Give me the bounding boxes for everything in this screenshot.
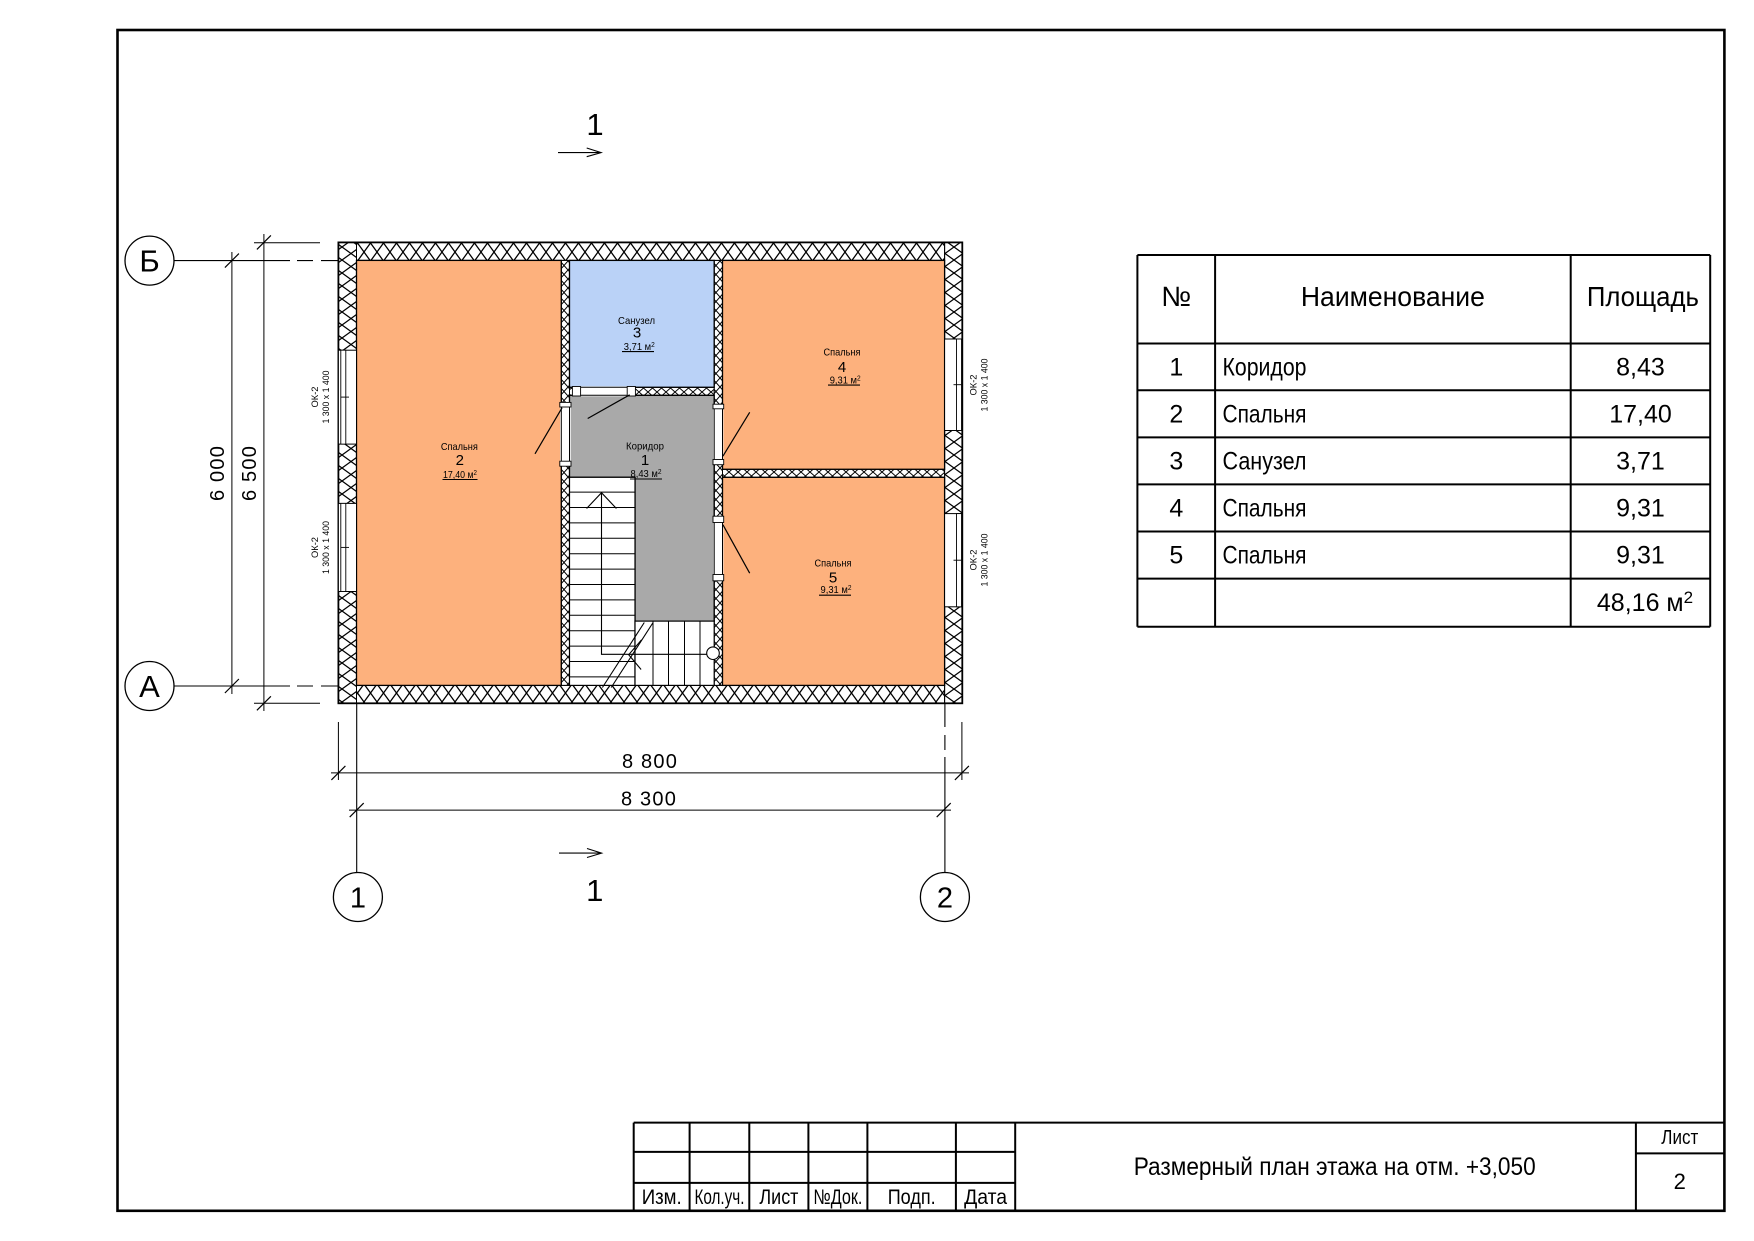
svg-text:3: 3 bbox=[1169, 447, 1183, 475]
svg-text:8,43: 8,43 bbox=[1616, 353, 1665, 381]
svg-text:8,43 м2: 8,43 м2 bbox=[631, 469, 662, 480]
svg-text:Площадь: Площадь bbox=[1587, 281, 1699, 312]
svg-text:1 300 х 1 400: 1 300 х 1 400 bbox=[321, 521, 332, 574]
svg-text:1 300 х 1 400: 1 300 х 1 400 bbox=[980, 534, 991, 587]
svg-text:Размерный план этажа на отм. +: Размерный план этажа на отм. +3,050 bbox=[1134, 1153, 1536, 1181]
svg-text:5: 5 bbox=[829, 570, 837, 587]
svg-text:№: № bbox=[1161, 281, 1191, 312]
svg-text:ОК-2: ОК-2 bbox=[969, 550, 980, 571]
svg-text:1: 1 bbox=[586, 873, 603, 908]
svg-text:ОК-2: ОК-2 bbox=[310, 537, 321, 558]
svg-text:2: 2 bbox=[937, 883, 953, 915]
svg-text:6 500: 6 500 bbox=[239, 445, 261, 501]
svg-text:Коридор: Коридор bbox=[626, 441, 664, 453]
svg-text:2: 2 bbox=[1674, 1169, 1686, 1194]
svg-text:ОК-2: ОК-2 bbox=[310, 387, 321, 408]
svg-text:9,31: 9,31 bbox=[1616, 495, 1665, 523]
svg-text:Спальня: Спальня bbox=[824, 346, 861, 358]
svg-text:Спальня: Спальня bbox=[815, 558, 852, 570]
svg-text:5: 5 bbox=[1169, 542, 1183, 570]
svg-text:1: 1 bbox=[641, 452, 649, 469]
svg-text:2: 2 bbox=[1169, 400, 1183, 428]
svg-text:1 300 х 1 400: 1 300 х 1 400 bbox=[321, 371, 332, 424]
svg-text:2: 2 bbox=[456, 452, 464, 469]
svg-text:Спальня: Спальня bbox=[1223, 400, 1307, 428]
svg-text:9,31 м2: 9,31 м2 bbox=[821, 585, 852, 596]
svg-text:Спальня: Спальня bbox=[1223, 542, 1307, 570]
svg-text:4: 4 bbox=[1169, 495, 1183, 523]
svg-text:А: А bbox=[139, 669, 160, 704]
svg-text:Лист: Лист bbox=[759, 1186, 798, 1209]
svg-text:Б: Б bbox=[139, 244, 159, 279]
svg-text:Изм.: Изм. bbox=[642, 1186, 682, 1209]
svg-text:4: 4 bbox=[838, 359, 846, 376]
svg-text:ОК-2: ОК-2 bbox=[969, 375, 980, 396]
svg-text:3,71: 3,71 bbox=[1616, 447, 1665, 475]
svg-text:№Док.: №Док. bbox=[813, 1186, 862, 1209]
svg-text:Кол.уч.: Кол.уч. bbox=[695, 1186, 745, 1209]
svg-text:Наименование: Наименование bbox=[1301, 281, 1485, 312]
svg-text:17,40: 17,40 bbox=[1609, 400, 1672, 428]
svg-text:Спальня: Спальня bbox=[1223, 495, 1307, 523]
svg-text:1: 1 bbox=[586, 107, 603, 142]
svg-text:8 300: 8 300 bbox=[621, 788, 677, 810]
svg-text:1 300 х 1 400: 1 300 х 1 400 bbox=[980, 359, 991, 412]
svg-text:Коридор: Коридор bbox=[1223, 353, 1307, 381]
svg-text:Дата: Дата bbox=[964, 1186, 1007, 1209]
svg-text:8 800: 8 800 bbox=[622, 751, 678, 773]
svg-text:Санузел: Санузел bbox=[1223, 447, 1307, 475]
svg-text:1: 1 bbox=[1169, 353, 1183, 381]
svg-text:Подп.: Подп. bbox=[888, 1186, 936, 1209]
svg-text:48,16 м2: 48,16 м2 bbox=[1597, 588, 1693, 617]
svg-text:6 000: 6 000 bbox=[207, 445, 229, 501]
svg-text:3: 3 bbox=[633, 325, 641, 342]
svg-text:9,31: 9,31 bbox=[1616, 542, 1665, 570]
svg-text:Лист: Лист bbox=[1661, 1127, 1698, 1149]
svg-text:1: 1 bbox=[350, 883, 366, 915]
